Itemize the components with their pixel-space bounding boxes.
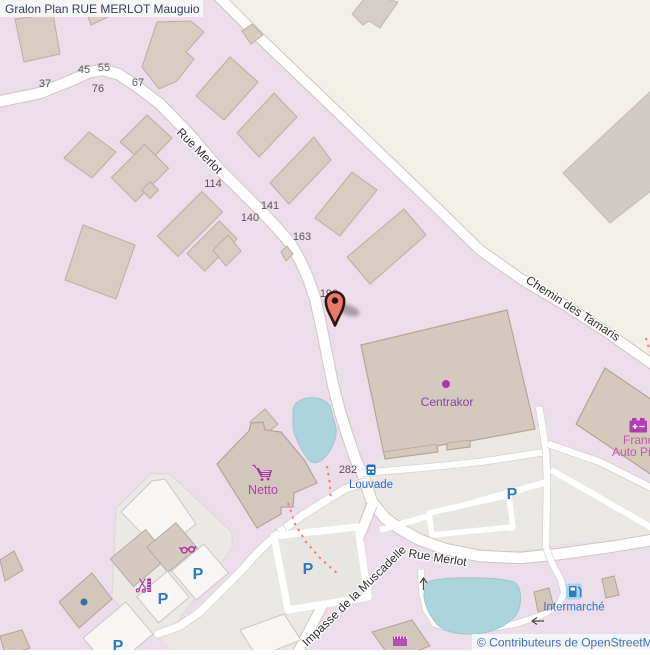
svg-text:P: P <box>507 486 518 503</box>
svg-text:114: 114 <box>204 178 222 190</box>
svg-text:67: 67 <box>132 77 144 89</box>
svg-text:76: 76 <box>92 83 104 95</box>
svg-text:163: 163 <box>293 231 311 243</box>
svg-text:282: 282 <box>339 464 357 476</box>
svg-text:45: 45 <box>78 64 90 76</box>
svg-text:P: P <box>303 561 314 578</box>
svg-text:55: 55 <box>98 62 110 74</box>
svg-text:Louvade: Louvade <box>349 479 393 491</box>
svg-text:Intermarché: Intermarché <box>543 602 604 614</box>
svg-text:37: 37 <box>39 78 51 90</box>
svg-text:P: P <box>158 591 169 608</box>
svg-text:141: 141 <box>261 200 279 212</box>
svg-text:Netto: Netto <box>248 483 278 497</box>
svg-text:Centrakor: Centrakor <box>421 395 474 409</box>
svg-text:P: P <box>193 566 204 583</box>
svg-text:Auto Piè: Auto Piè <box>612 445 650 459</box>
svg-text:© Contributeurs de OpenStreetM: © Contributeurs de OpenStreetMap <box>477 636 650 650</box>
svg-text:140: 140 <box>241 212 259 224</box>
svg-text:P: P <box>113 638 124 650</box>
svg-text:Gralon Plan RUE MERLOT Mauguio: Gralon Plan RUE MERLOT Mauguio <box>5 2 200 16</box>
